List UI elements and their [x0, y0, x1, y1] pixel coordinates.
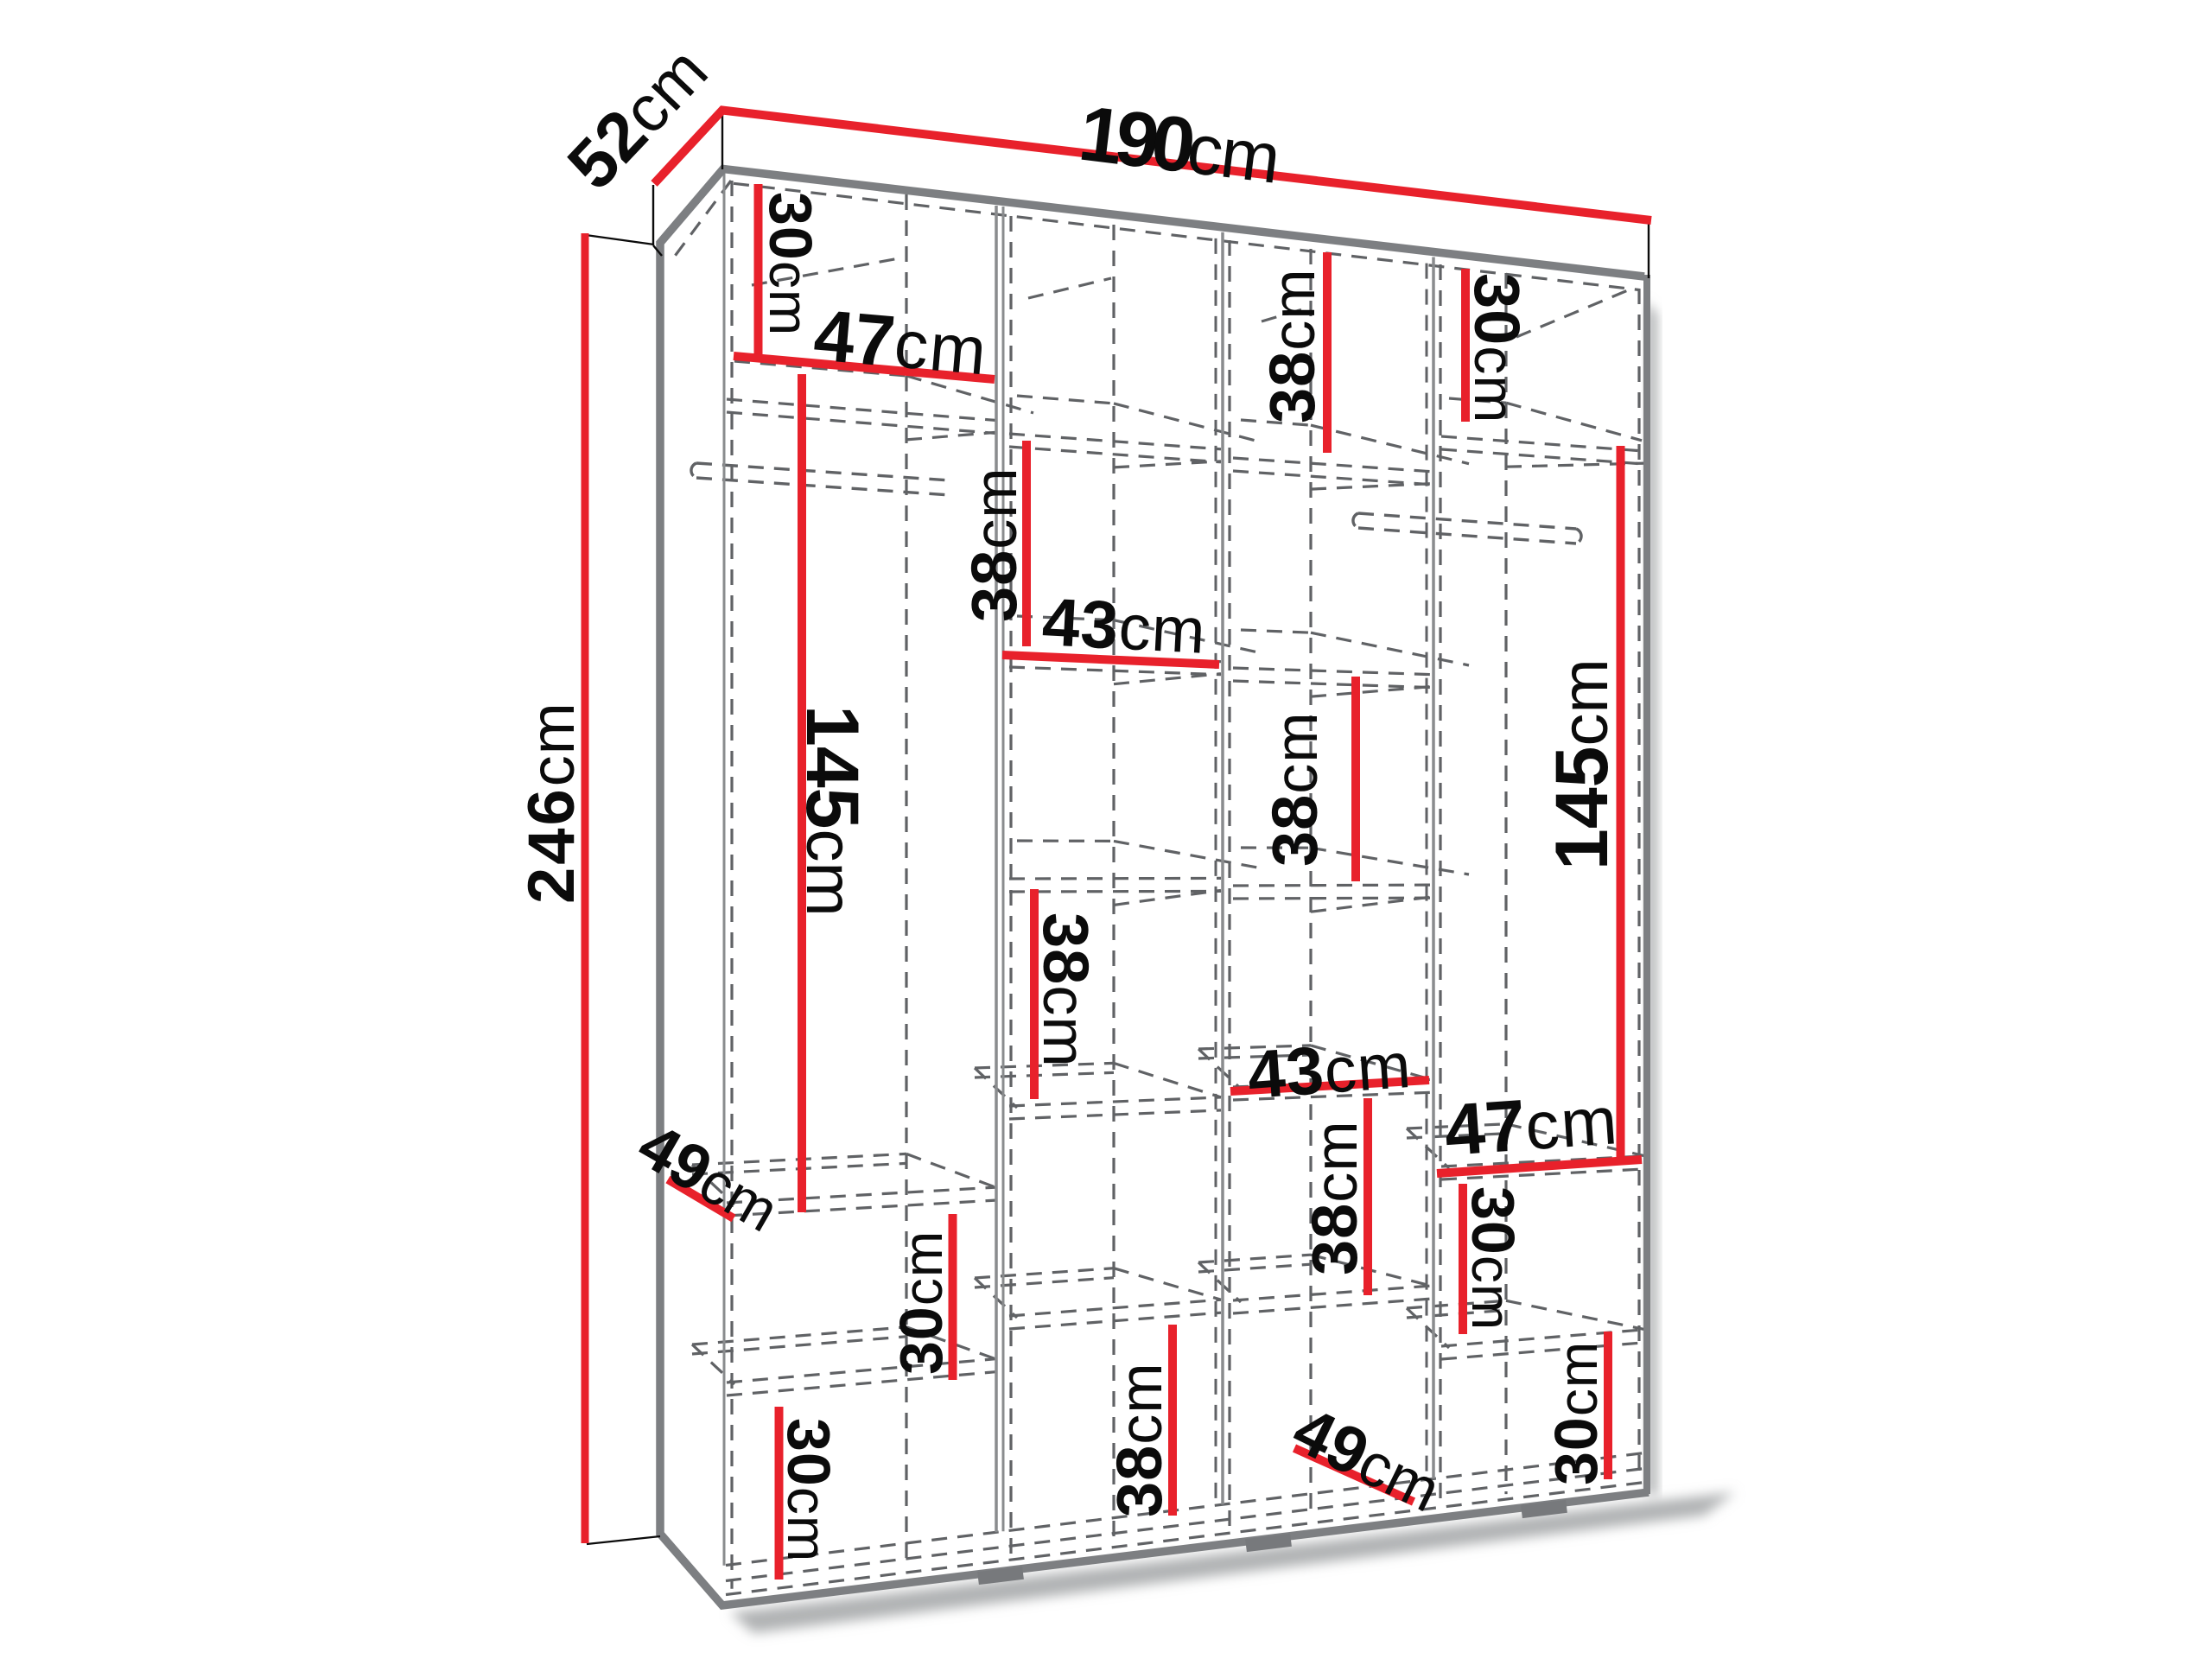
- svg-text:246cm: 246cm: [515, 702, 588, 904]
- svg-text:30cm: 30cm: [1542, 1341, 1610, 1485]
- svg-text:38cm: 38cm: [1256, 268, 1328, 423]
- svg-text:30cm: 30cm: [775, 1418, 842, 1562]
- svg-text:38cm: 38cm: [1259, 711, 1331, 867]
- svg-text:145cm: 145cm: [791, 705, 874, 917]
- svg-text:38cm: 38cm: [1299, 1120, 1370, 1275]
- svg-text:43cm: 43cm: [1040, 583, 1208, 668]
- svg-text:30cm: 30cm: [1461, 273, 1533, 423]
- svg-text:145cm: 145cm: [1541, 658, 1624, 870]
- svg-text:43cm: 43cm: [1245, 1026, 1414, 1113]
- svg-text:38cm: 38cm: [958, 467, 1030, 622]
- svg-text:30cm: 30cm: [757, 192, 824, 336]
- svg-text:38cm: 38cm: [1103, 1362, 1175, 1517]
- svg-text:30cm: 30cm: [1459, 1186, 1527, 1331]
- svg-text:30cm: 30cm: [887, 1230, 955, 1375]
- svg-text:38cm: 38cm: [1030, 912, 1102, 1068]
- svg-text:47cm: 47cm: [1442, 1077, 1621, 1171]
